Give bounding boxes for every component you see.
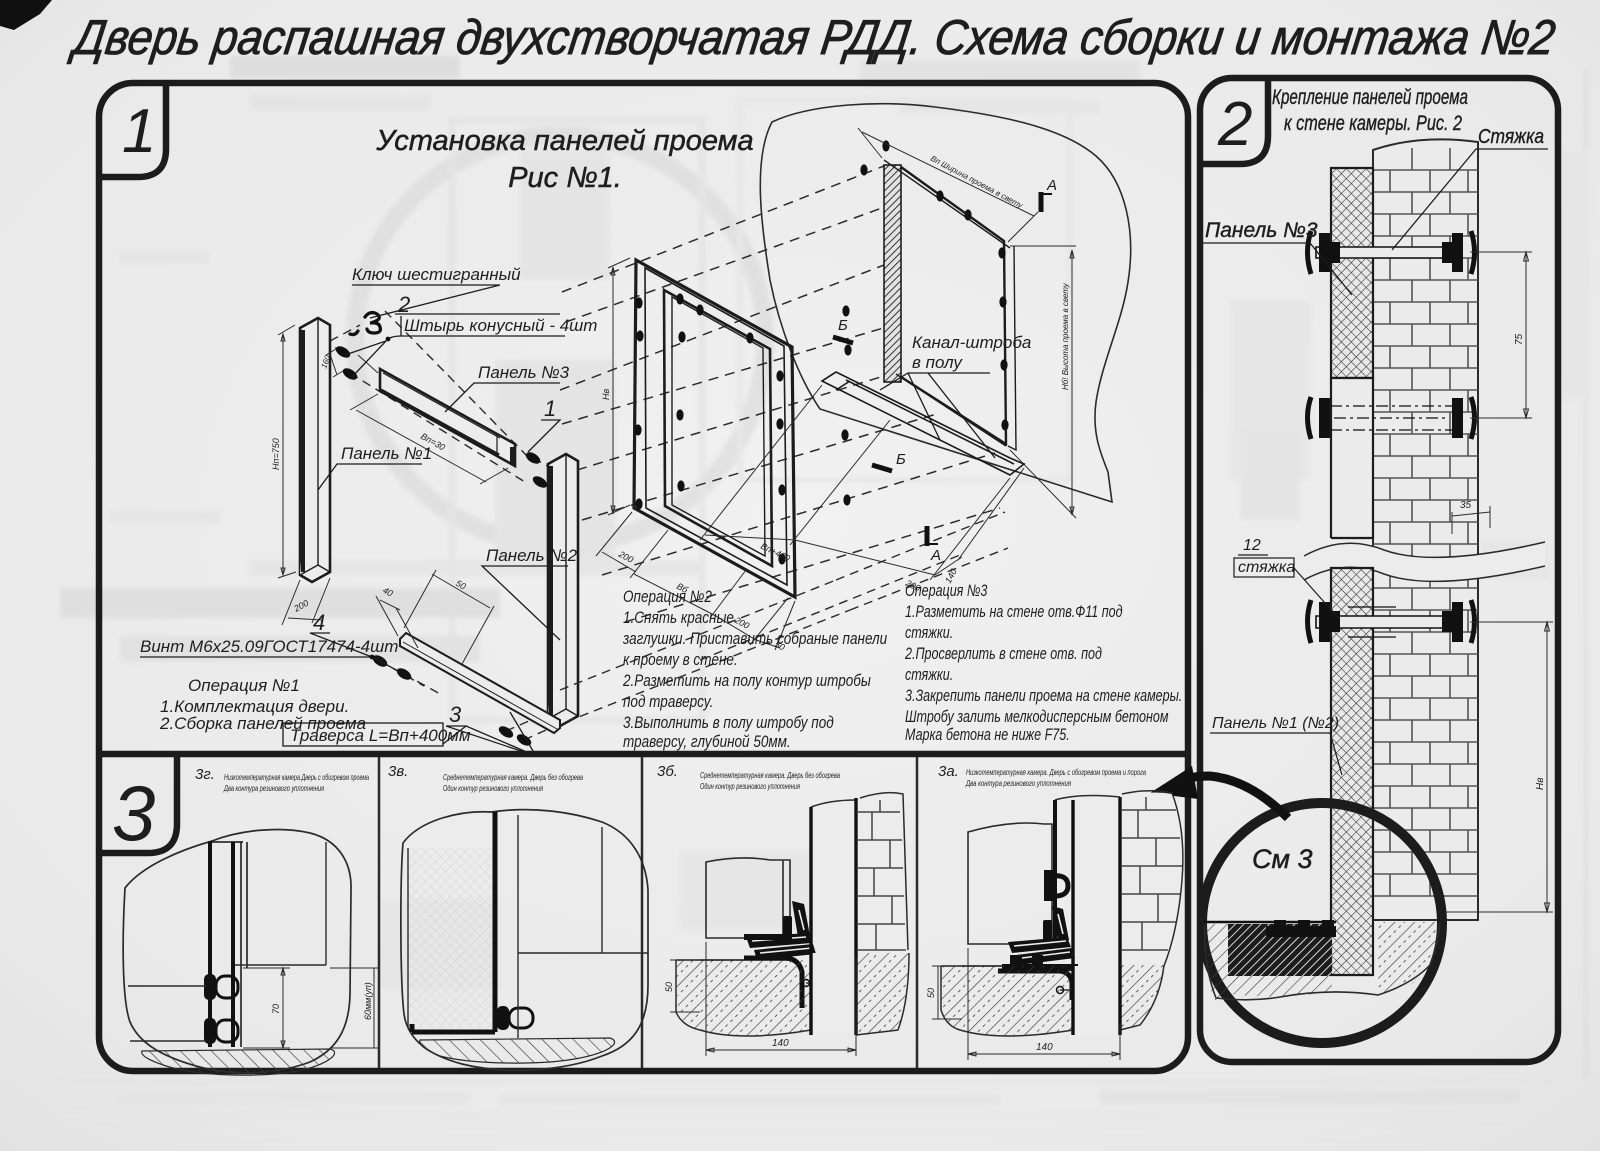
svg-text:Крепление панелей проема: Крепление панелей проема <box>1272 86 1468 109</box>
svg-text:Операция №2: Операция №2 <box>623 588 712 607</box>
svg-text:Панель №3: Панель №3 <box>478 363 570 382</box>
svg-text:См 3: См 3 <box>1252 844 1313 874</box>
svg-text:Канал-штроба: Канал-штроба <box>912 333 1031 352</box>
svg-text:1.Разметить на стене отв.Ф11 п: 1.Разметить на стене отв.Ф11 под <box>905 603 1123 621</box>
svg-text:Штырь конусный - 4шт: Штырь конусный - 4шт <box>404 316 597 335</box>
svg-text:под траверсу.: под траверсу. <box>623 693 713 712</box>
svg-text:Панель №3: Панель №3 <box>1205 219 1318 242</box>
svg-text:Низкотемпературная камера.Двер: Низкотемпературная камера.Дверь с обогре… <box>224 773 369 782</box>
svg-text:Низкотемпературная камера. Две: Низкотемпературная камера. Дверь с обогр… <box>966 768 1146 777</box>
svg-text:1.Снять красные: 1.Снять красные <box>623 609 734 628</box>
svg-text:140: 140 <box>1036 1042 1053 1053</box>
svg-text:Среднетемпературная камера. Дв: Среднетемпературная камера. Дверь без об… <box>443 773 583 782</box>
svg-text:А: А <box>930 547 941 564</box>
svg-text:1: 1 <box>544 396 556 421</box>
svg-text:Панель №1: Панель №1 <box>341 444 432 463</box>
svg-text:А: А <box>1046 177 1057 194</box>
svg-text:Два контура резинового уплотне: Два контура резинового уплотнения <box>965 779 1071 788</box>
svg-text:2.Просверлить в стене отв. п: 2.Просверлить в стене отв. под <box>904 645 1102 663</box>
svg-text:75: 75 <box>1514 333 1525 345</box>
svg-text:35: 35 <box>1460 500 1472 511</box>
svg-text:12: 12 <box>1243 537 1261 554</box>
svg-text:3в.: 3в. <box>388 763 408 780</box>
svg-text:Установка панелей проема: Установка панелей проема <box>375 125 753 157</box>
svg-text:Б: Б <box>838 317 848 334</box>
svg-text:3г.: 3г. <box>195 766 215 783</box>
svg-text:70: 70 <box>271 1004 281 1014</box>
svg-text:50: 50 <box>926 988 936 998</box>
svg-text:3а.: 3а. <box>938 763 959 780</box>
svg-text:Дверь распашная двухстворчатая: Дверь распашная двухстворчатая РДД. Схем… <box>66 10 1558 65</box>
svg-text:1: 1 <box>122 97 156 166</box>
svg-text:140: 140 <box>772 1038 789 1049</box>
svg-text:Два контура резинового уплотне: Два контура резинового уплотнения <box>223 784 324 793</box>
svg-text:Один контур резинового уплотне: Один контур резинового уплотнения <box>700 782 801 791</box>
svg-text:стяжки.: стяжки. <box>905 624 953 642</box>
svg-text:Операция №1: Операция №1 <box>188 676 300 695</box>
svg-text:к стене камеры. Рис. 2: к стене камеры. Рис. 2 <box>1284 112 1462 135</box>
svg-text:стяжка: стяжка <box>1238 559 1295 576</box>
svg-text:Среднетемпературная камера. Дв: Среднетемпературная камера. Дверь без об… <box>700 771 840 780</box>
svg-text:Штробу залить мелкодисперсным: Штробу залить мелкодисперсным бетоном <box>905 708 1168 726</box>
svg-text:Марка бетона не ниже F75.: Марка бетона не ниже F75. <box>905 726 1070 744</box>
svg-text:Ключ шестигранный: Ключ шестигранный <box>352 265 521 284</box>
svg-text:2: 2 <box>1217 90 1252 159</box>
svg-text:Траверса L=Вп+400мм: Траверса L=Вп+400мм <box>290 726 471 745</box>
svg-text:3б.: 3б. <box>657 763 678 780</box>
svg-text:Винт М6х25.09ГОСТ17474-4шт: Винт М6х25.09ГОСТ17474-4шт <box>140 637 398 656</box>
svg-text:Нб! Высота проема в свету: Нб! Высота проема в свету <box>1061 282 1070 390</box>
svg-text:стяжки.: стяжки. <box>905 666 953 684</box>
svg-text:50: 50 <box>664 982 674 992</box>
svg-text:60мм(уп): 60мм(уп) <box>363 982 373 1020</box>
svg-text:к проему в стене.: к проему в стене. <box>623 651 738 670</box>
svg-text:Нв: Нв <box>1535 778 1546 790</box>
svg-text:в полу: в полу <box>912 353 963 372</box>
svg-text:Панель №2: Панель №2 <box>486 546 578 565</box>
svg-text:Один контур резинового уплотне: Один контур резинового уплотнения <box>443 784 544 793</box>
svg-text:2: 2 <box>397 292 410 317</box>
svg-text:3: 3 <box>112 769 155 857</box>
svg-text:заглушки. Приставить собраные: заглушки. Приставить собраные панели <box>622 630 888 649</box>
svg-text:Рис №1.: Рис №1. <box>508 162 622 194</box>
svg-text:2.Разметить на полу контур штр: 2.Разметить на полу контур штробы <box>622 672 871 691</box>
svg-text:Б: Б <box>896 451 906 468</box>
svg-text:Нв: Нв <box>601 389 611 400</box>
svg-text:3.Закрепить панели проема на с: 3.Закрепить панели проема на стене камер… <box>905 687 1182 705</box>
svg-text:Стяжка: Стяжка <box>1478 126 1544 148</box>
svg-text:Операция №3: Операция №3 <box>905 582 988 600</box>
svg-text:траверсу, глубиной 50мм.: траверсу, глубиной 50мм. <box>623 733 791 752</box>
svg-text:3.Выполнить в полу штробу под: 3.Выполнить в полу штробу под <box>623 714 834 733</box>
svg-text:Панель №1 (№2): Панель №1 (№2) <box>1212 715 1339 732</box>
svg-text:3: 3 <box>449 702 462 727</box>
svg-text:4: 4 <box>313 610 325 635</box>
svg-text:Нп=750: Нп=750 <box>271 438 281 470</box>
